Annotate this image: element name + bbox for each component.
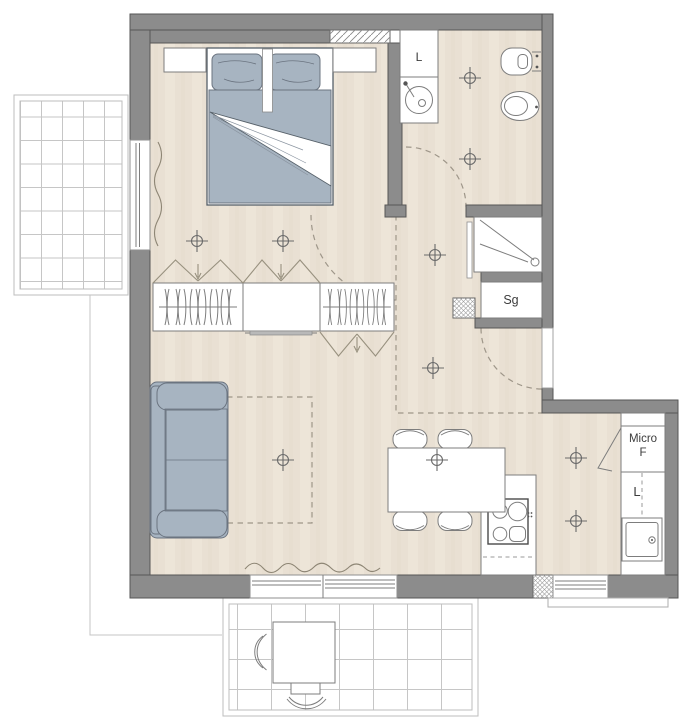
window-sill	[548, 598, 668, 607]
bidet	[501, 92, 539, 121]
bed	[207, 48, 333, 205]
wall-segment	[608, 575, 678, 598]
wall-segment-shower	[466, 205, 542, 217]
wall-segment	[385, 205, 406, 217]
kitchen-sink	[622, 518, 662, 561]
wall-segment-storage	[475, 318, 542, 328]
dining-chair	[438, 511, 472, 531]
pillow	[270, 54, 320, 90]
wall-segment-shower	[481, 272, 542, 282]
dining-chair	[393, 511, 427, 531]
dining-table	[388, 448, 505, 512]
window-left	[130, 140, 150, 250]
sliding-rail	[250, 331, 312, 335]
floor-plan: L Sg Micro F L	[0, 0, 686, 720]
left-balcony	[14, 95, 128, 295]
shower-glass	[467, 222, 472, 278]
label-washer: L	[416, 50, 423, 64]
wall-segment	[130, 30, 150, 140]
sliding-door	[250, 575, 397, 598]
label-storage: Sg	[503, 293, 518, 307]
sofa-armrest	[157, 383, 227, 410]
bottom-terrace	[223, 598, 478, 716]
sofa	[150, 382, 228, 538]
label-fridge: F	[639, 447, 646, 459]
wall-segment	[130, 250, 150, 598]
pillow	[212, 54, 262, 90]
wall-segment	[130, 14, 553, 30]
faucet-knob	[403, 81, 407, 85]
wall-segment	[130, 575, 250, 598]
balcony-tiles	[20, 101, 122, 289]
dining-chair	[393, 430, 427, 450]
entry-opening	[542, 328, 553, 388]
sheet-gap	[263, 49, 273, 112]
dining-chair	[438, 430, 472, 450]
wardrobe-section	[243, 283, 320, 331]
floor-plan-canvas: L Sg Micro F L	[0, 0, 686, 720]
wall-segment	[542, 400, 678, 413]
label-microwave: Micro	[629, 433, 657, 445]
label-dishwasher: L	[633, 484, 640, 499]
column-hatch	[533, 575, 553, 598]
column-hatch	[453, 298, 475, 318]
wall-segment	[397, 575, 533, 598]
wall-segment	[130, 30, 330, 43]
terrace-chair	[291, 683, 320, 694]
nightstand-right	[333, 48, 376, 72]
sofa-armrest	[157, 510, 227, 537]
terrace-table	[273, 622, 335, 683]
terrace-tiles	[229, 604, 472, 710]
wall-segment	[542, 14, 553, 328]
duct-hatch	[330, 30, 390, 43]
wall-segment	[665, 413, 678, 575]
nightstand-left	[164, 48, 206, 72]
shower	[467, 217, 542, 278]
